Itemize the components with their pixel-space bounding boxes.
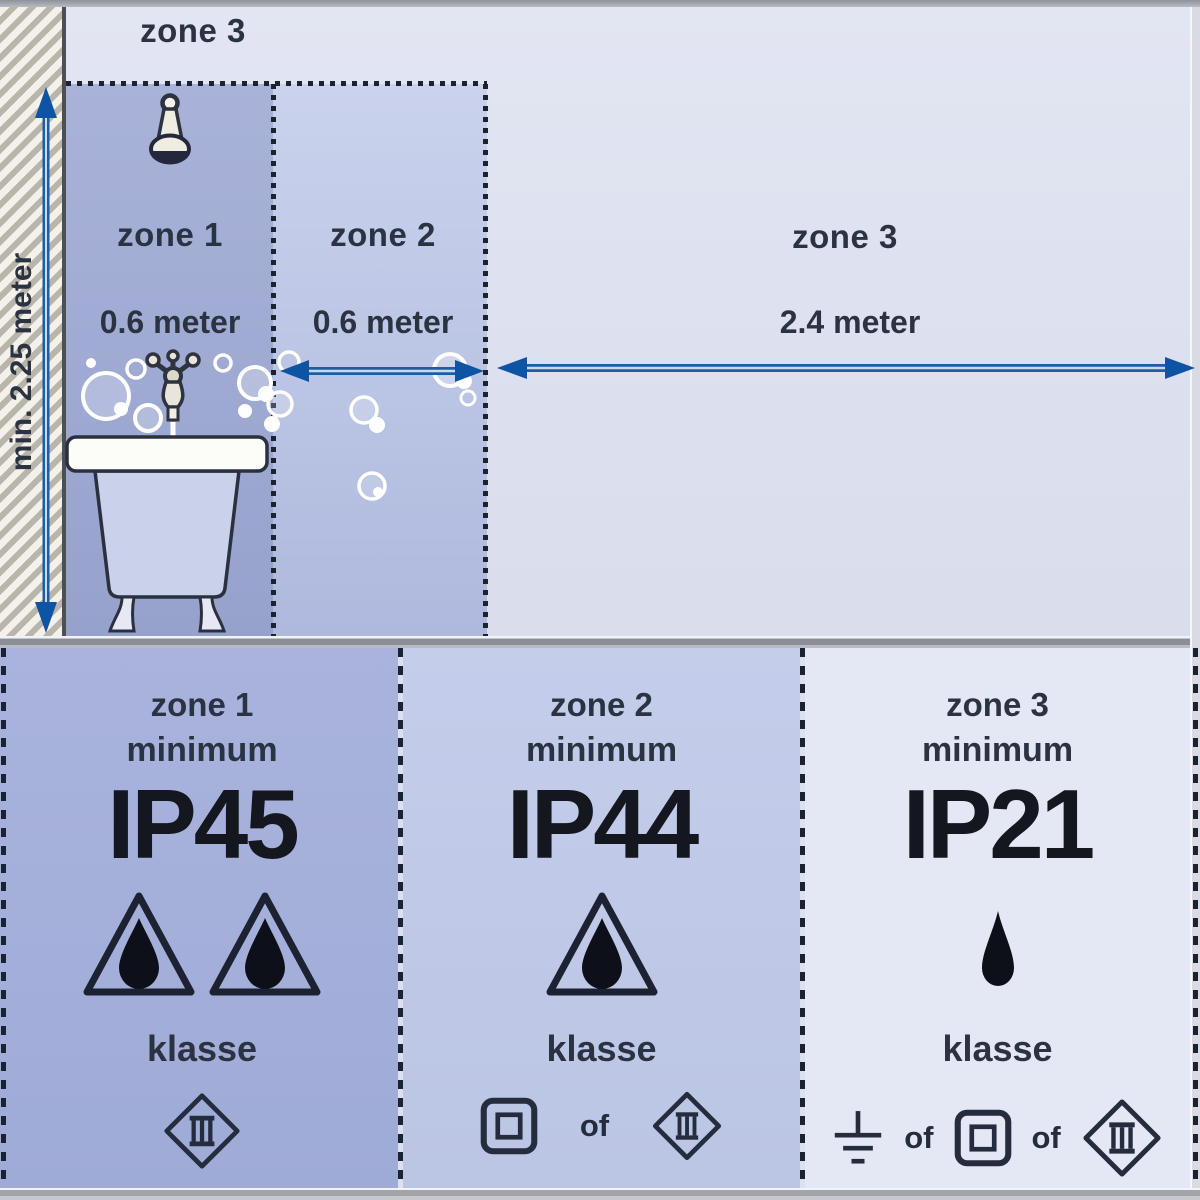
panel1-ip-rating: IP45	[6, 768, 398, 881]
panel1-panel2-divider-dashed	[398, 648, 403, 1188]
panel3-klasse-label: klasse	[805, 1028, 1190, 1070]
of-conjunction: of	[1032, 1122, 1061, 1153]
bubbles	[258, 388, 302, 438]
zone2-width-arrow	[279, 355, 485, 387]
bubbles	[78, 348, 170, 444]
shower-head-icon	[148, 92, 192, 168]
droplet-icon	[974, 908, 1022, 992]
diamond-class-3-icon	[1081, 1097, 1163, 1179]
bathroom-zones-infographic: zone 3 min. 2.25 meter zone 1 0.6 meter …	[0, 0, 1200, 1200]
triangle-droplet-icon	[544, 888, 660, 1000]
panel2-minimum-label: minimum	[403, 731, 800, 770]
zone3-width-arrow	[495, 352, 1197, 384]
earth-class-1-icon	[832, 1108, 884, 1168]
bubbles	[352, 466, 394, 508]
square-class-2-icon	[954, 1109, 1012, 1167]
panel3-minimum-label: minimum	[805, 731, 1190, 770]
zone2-label: zone 2	[303, 216, 463, 254]
bathtub-icon	[62, 430, 274, 640]
of-conjunction: of	[580, 1110, 609, 1141]
zone1-label: zone 1	[90, 216, 250, 254]
height-dimension-arrow	[32, 86, 60, 634]
panel1-klasse-label: klasse	[6, 1028, 398, 1070]
zone3-label: zone 3	[765, 218, 925, 256]
bubbles	[344, 392, 394, 440]
triangle-droplet-icon	[81, 888, 197, 1000]
zone3-dimension-label: 2.4 meter	[750, 304, 950, 341]
panel3-zone-label: zone 3	[805, 686, 1190, 724]
top-border-bar	[0, 0, 1200, 7]
diamond-class-3-icon	[651, 1090, 723, 1162]
panel2-zone-label: zone 2	[403, 686, 800, 724]
panel1-minimum-label: minimum	[6, 731, 398, 770]
panel2-ip-rating: IP44	[403, 768, 800, 881]
bottom-border-bar	[0, 1188, 1200, 1200]
panel3-ip-rating: IP21	[805, 768, 1190, 881]
triangle-droplet-icon	[207, 888, 323, 1000]
panel2-klasse-label: klasse	[403, 1028, 800, 1070]
panel1-zone-label: zone 1	[6, 686, 398, 724]
ceiling-zone3-label: zone 3	[108, 12, 278, 50]
panel-left-edge-dashed	[1, 648, 6, 1188]
panel2-panel3-divider-dashed	[800, 648, 805, 1188]
zone-boundary-top-dotted	[66, 81, 487, 86]
panel-right-edge-dashed	[1193, 648, 1198, 1188]
diamond-class-3-icon	[162, 1091, 242, 1171]
zone1-dimension-label: 0.6 meter	[85, 304, 255, 341]
of-conjunction: of	[904, 1122, 933, 1153]
square-class-2-icon	[480, 1097, 538, 1155]
zone2-dimension-label: 0.6 meter	[288, 304, 478, 341]
floor-divider-bar	[0, 636, 1200, 648]
